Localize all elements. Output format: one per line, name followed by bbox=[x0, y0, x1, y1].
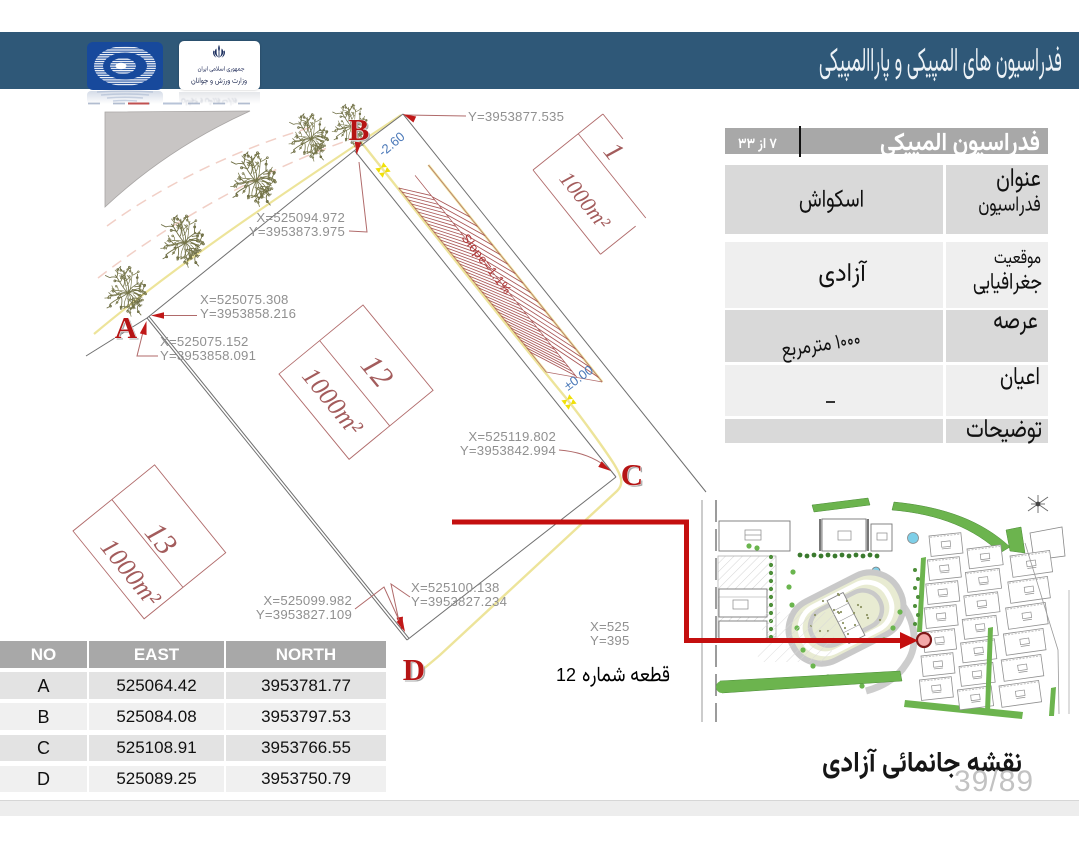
svg-text:X=525119.802: X=525119.802 bbox=[468, 429, 556, 444]
svg-text:Y=3953842.994: Y=3953842.994 bbox=[460, 443, 556, 458]
svg-text:Y=3953827.109: Y=3953827.109 bbox=[256, 607, 352, 622]
svg-text:X=525100.138: X=525100.138 bbox=[411, 580, 500, 595]
svg-text:X=525099.982: X=525099.982 bbox=[263, 593, 352, 608]
svg-text:Y=3953877.535: Y=3953877.535 bbox=[468, 109, 564, 124]
svg-text:12: 12 bbox=[354, 348, 401, 394]
svg-text:Y=3953858.091: Y=3953858.091 bbox=[160, 348, 256, 363]
svg-text:1000m²: 1000m² bbox=[554, 166, 615, 234]
svg-text:X=525075.308: X=525075.308 bbox=[200, 292, 289, 307]
svg-text:13: 13 bbox=[138, 515, 185, 561]
svg-text:A: A bbox=[115, 310, 138, 345]
svg-text:Y=3953827.234: Y=3953827.234 bbox=[411, 594, 507, 609]
svg-text:D: D bbox=[403, 652, 425, 687]
svg-text:Y=3953858.216: Y=3953858.216 bbox=[200, 306, 296, 321]
svg-text:X=525075.152: X=525075.152 bbox=[160, 334, 249, 349]
svg-text:C: C bbox=[621, 457, 643, 492]
svg-text:B: B bbox=[349, 112, 370, 147]
svg-text:X=525094.972: X=525094.972 bbox=[256, 210, 345, 225]
svg-text:1: 1 bbox=[597, 137, 630, 167]
svg-text:-2.60: -2.60 bbox=[375, 129, 407, 160]
svg-text:Y=3953873.975: Y=3953873.975 bbox=[249, 224, 345, 239]
